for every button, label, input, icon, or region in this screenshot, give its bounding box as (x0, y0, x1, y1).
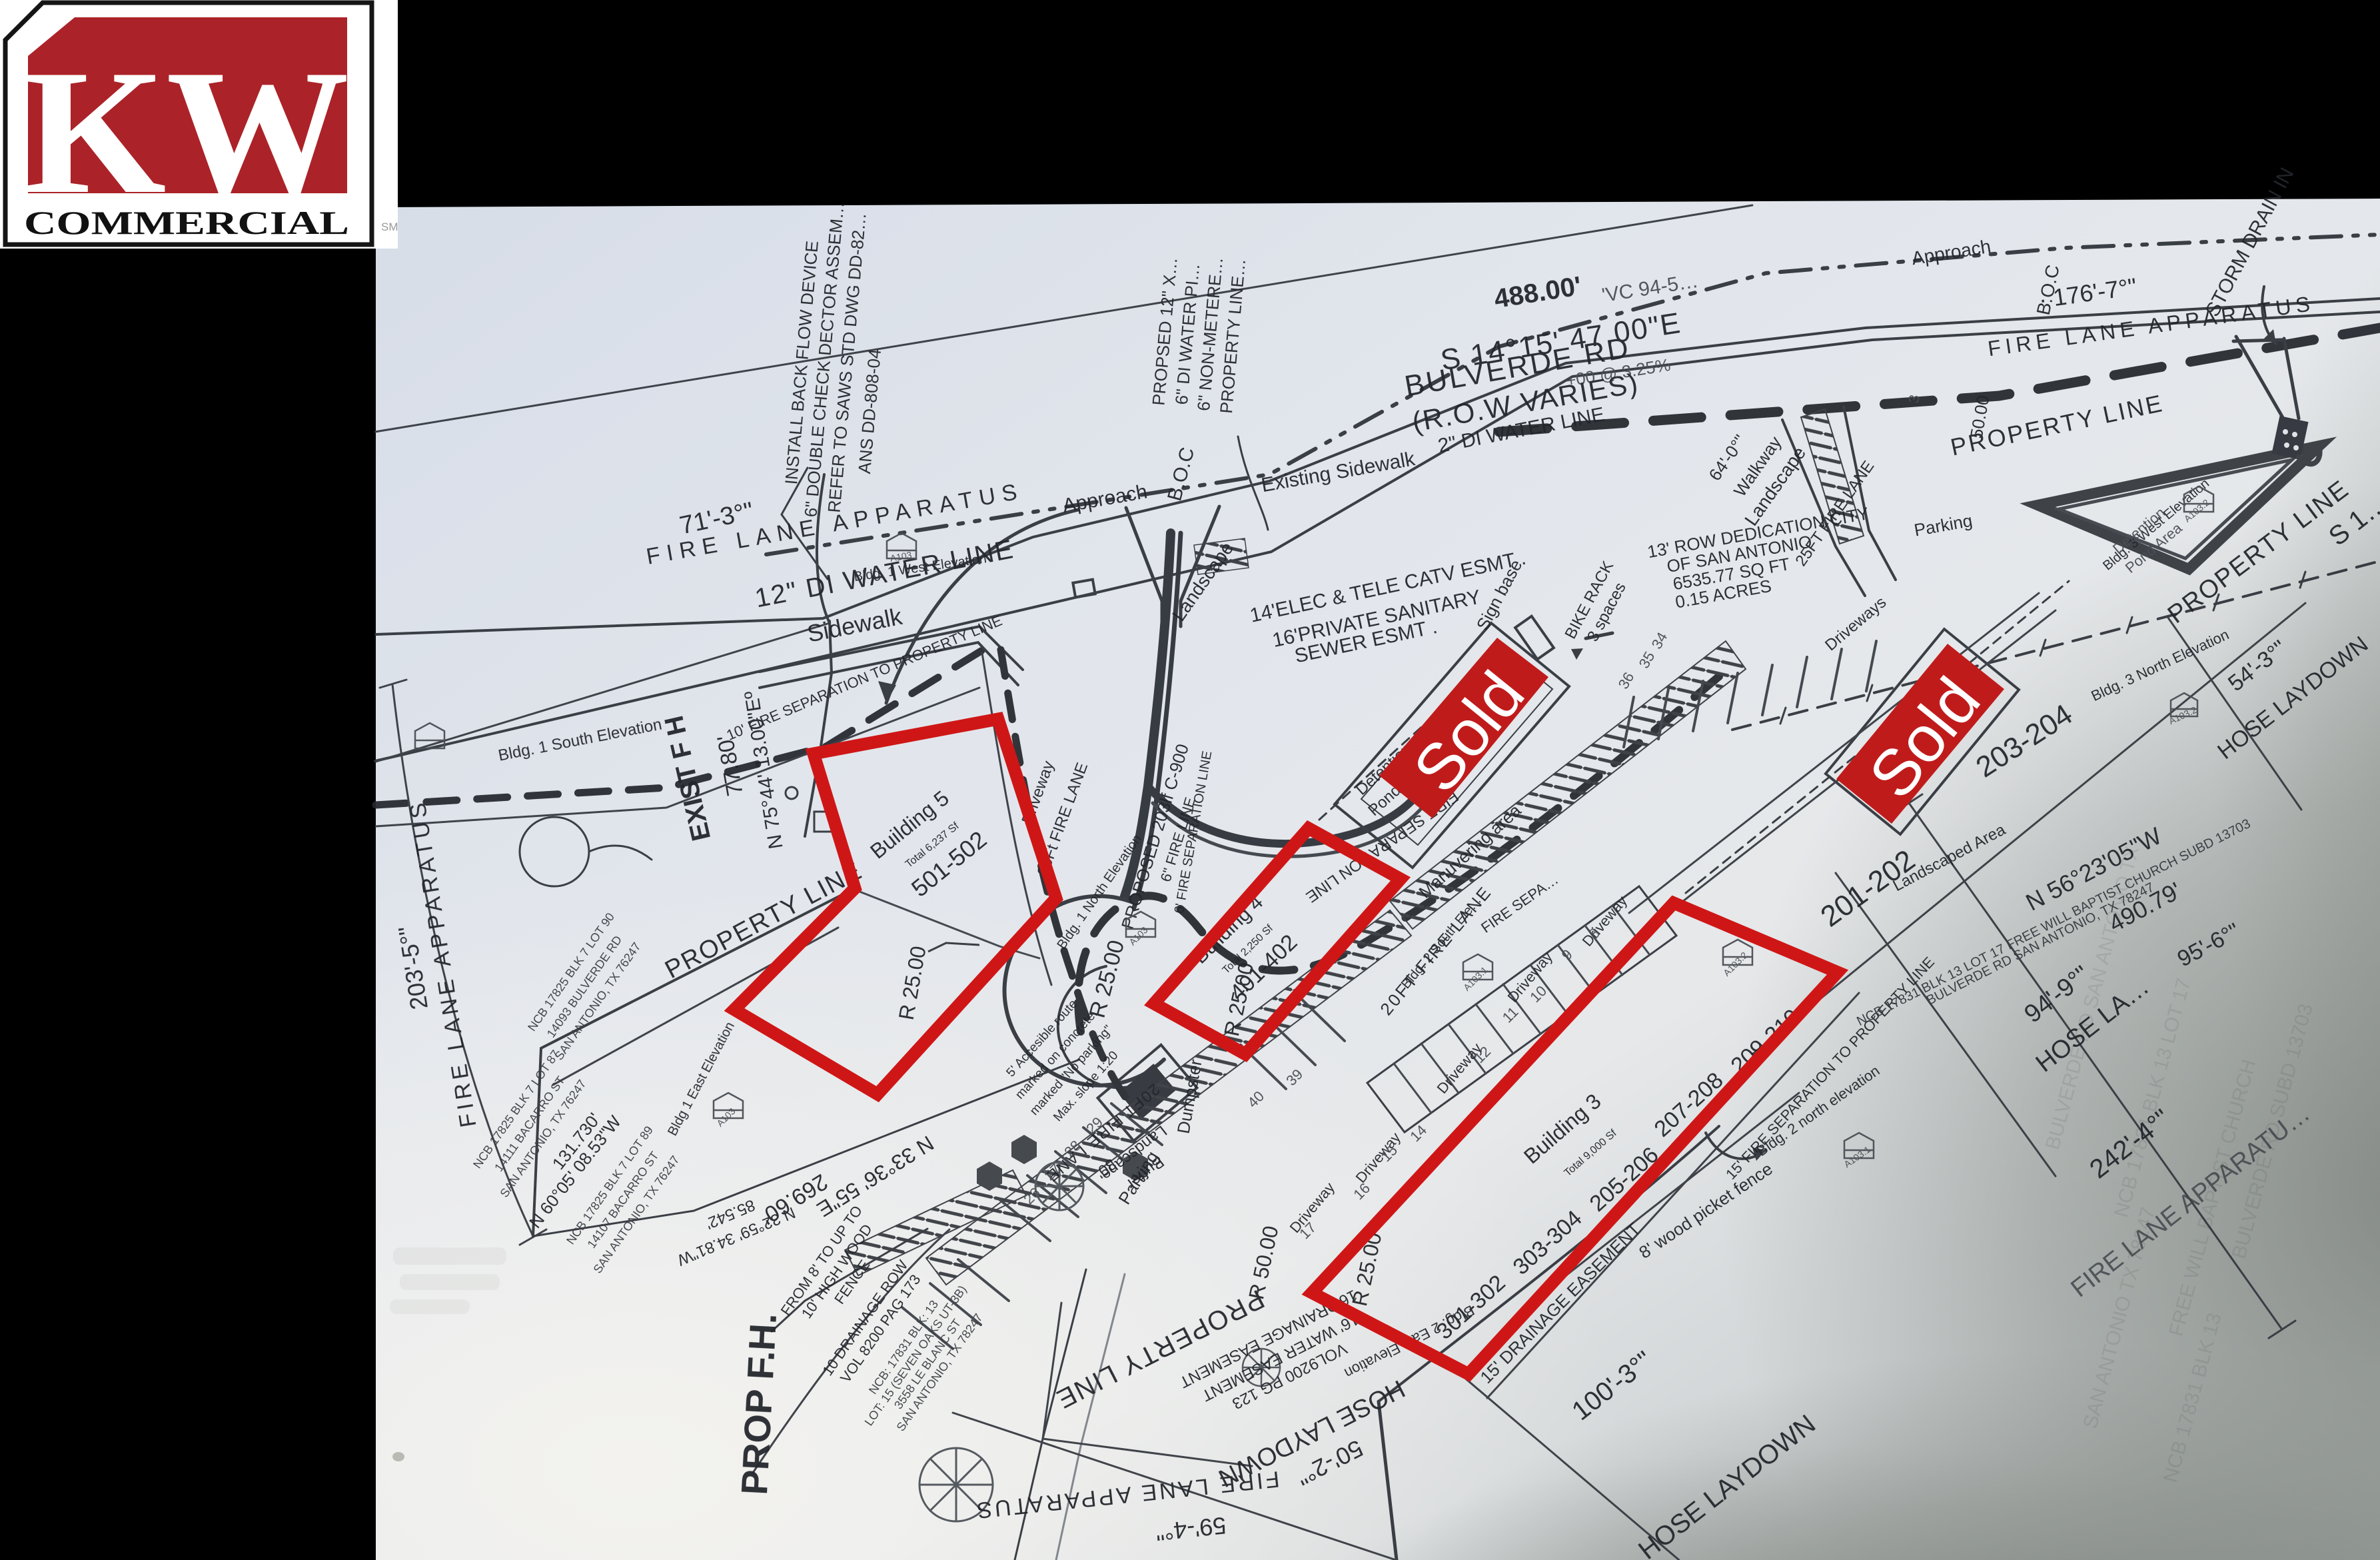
svg-text:SM: SM (381, 221, 398, 233)
svg-text:KW: KW (24, 33, 349, 231)
svg-text:COMMERCIAL: COMMERCIAL (24, 204, 349, 241)
